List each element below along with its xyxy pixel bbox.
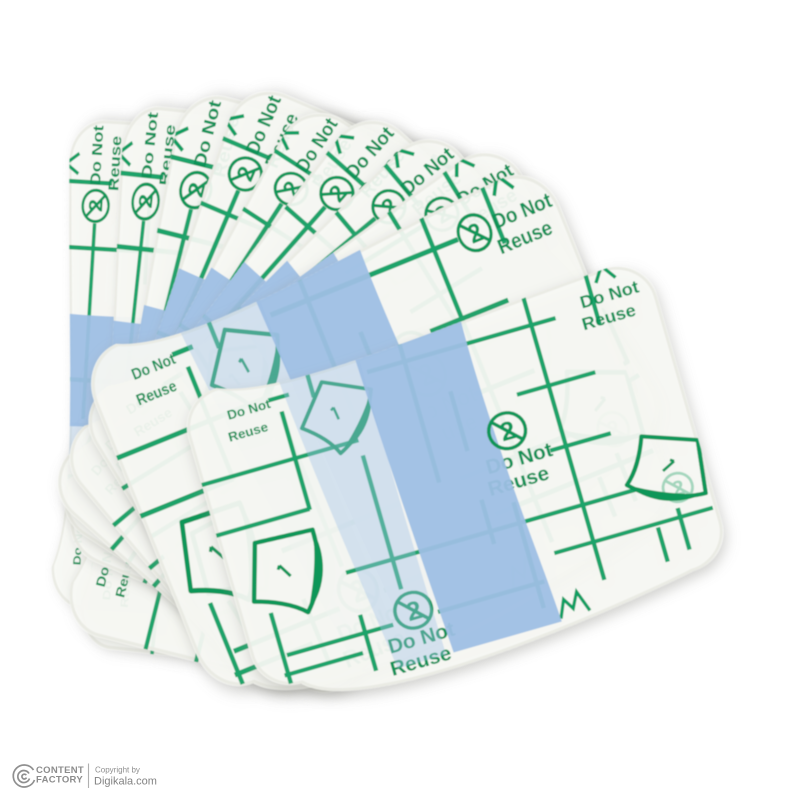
- svg-text:FACTORY: FACTORY: [36, 775, 83, 786]
- svg-text:Copyright by: Copyright by: [95, 765, 140, 774]
- svg-text:Digikala.com: Digikala.com: [94, 776, 157, 788]
